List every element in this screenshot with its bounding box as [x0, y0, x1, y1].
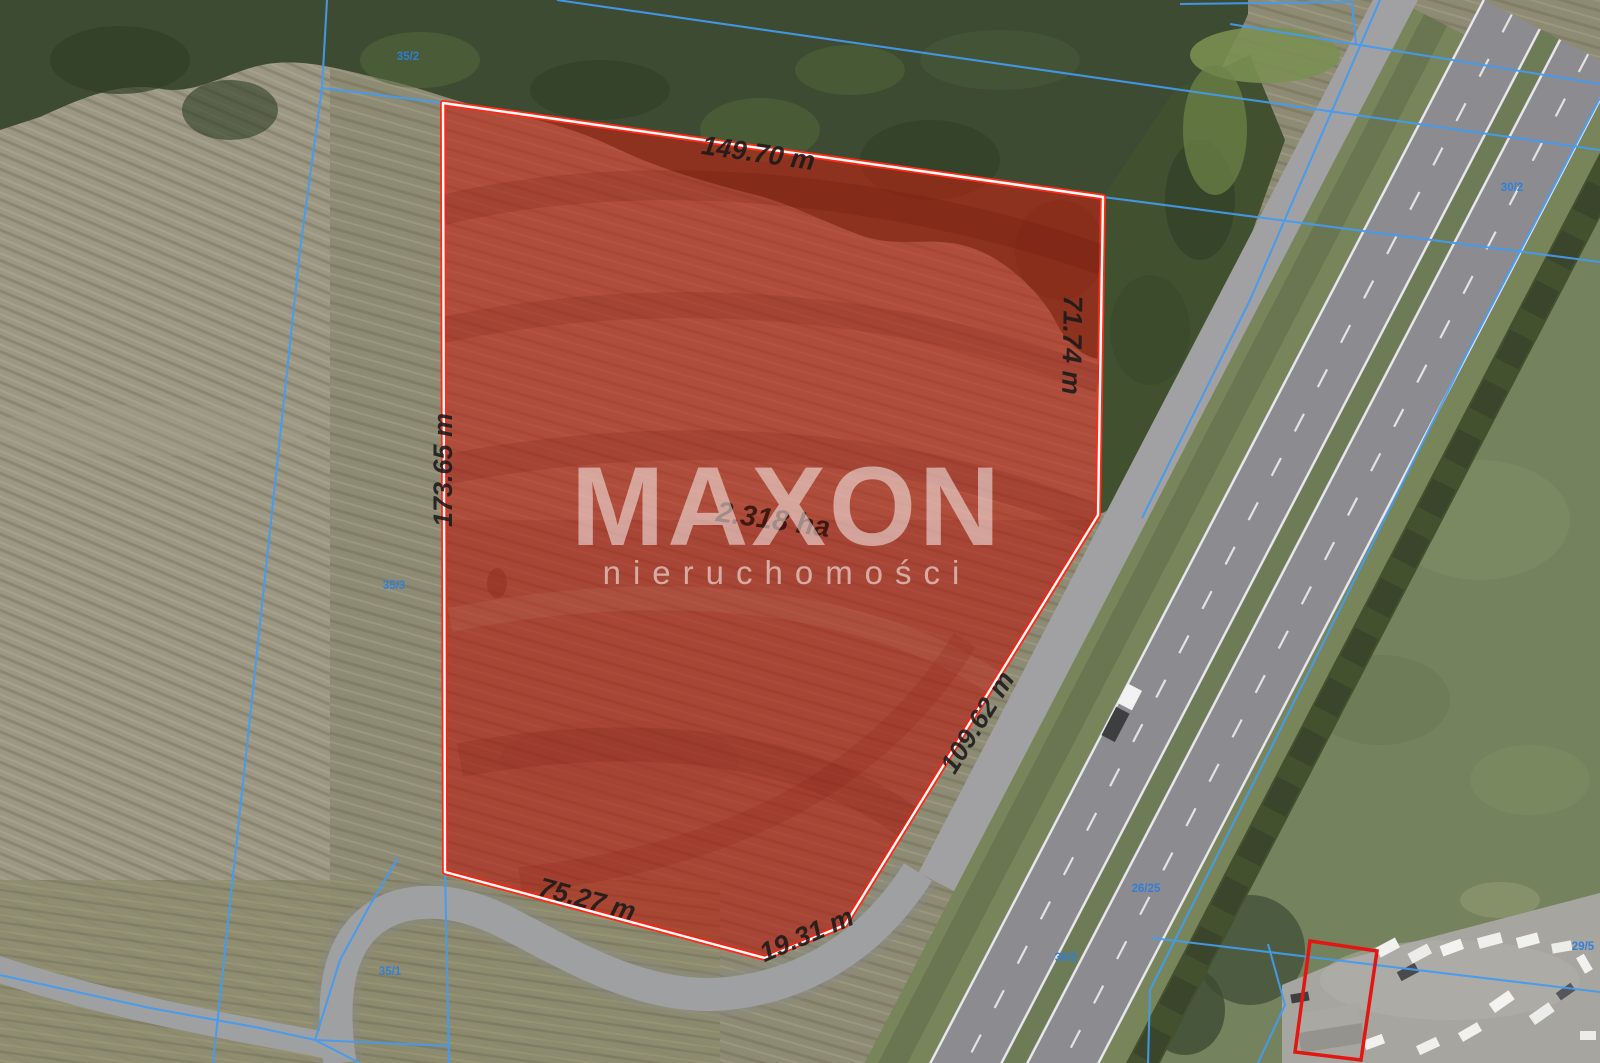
watermark: MAXON nieruchomości: [571, 444, 1003, 591]
parcel-number: 36/2: [1055, 952, 1077, 964]
edge-length-left: 173.65 m: [428, 413, 458, 527]
parcel-number: 35/3: [383, 580, 405, 592]
aerial-parcel-map: 35/2 35/3 35/1 26/25 36/2 29/5 30/2 149.…: [0, 0, 1600, 1063]
parcel-number: 29/5: [1572, 941, 1595, 953]
parcel-number: 35/1: [379, 966, 402, 978]
edge-length-right: 71.74 m: [1056, 295, 1088, 395]
watermark-brand: MAXON: [571, 444, 1003, 569]
map-canvas: 35/2 35/3 35/1 26/25 36/2 29/5 30/2 149.…: [0, 0, 1600, 1063]
parcel-number: 35/2: [397, 51, 419, 63]
watermark-subtitle: nieruchomości: [603, 554, 972, 591]
parcel-number: 26/25: [1132, 883, 1161, 895]
parcel-number: 30/2: [1501, 182, 1523, 194]
